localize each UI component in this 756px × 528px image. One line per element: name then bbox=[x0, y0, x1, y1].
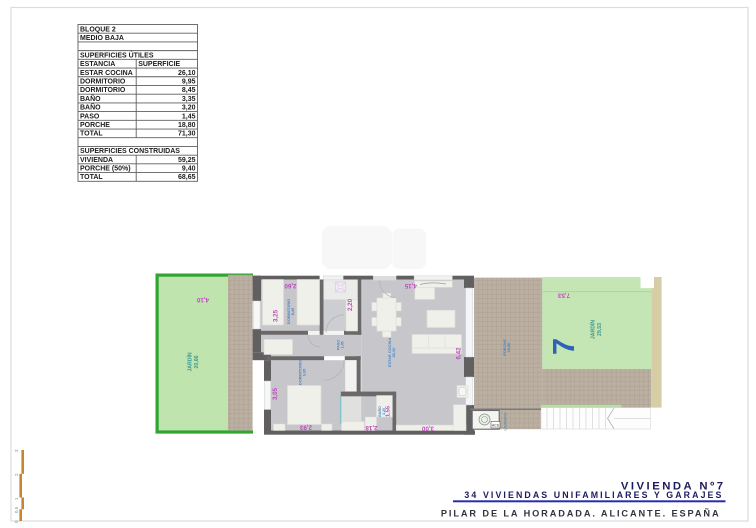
svg-text:34 VIVIENDAS UNIFAMILIARES Y G: 34 VIVIENDAS UNIFAMILIARES Y GARAJES bbox=[464, 490, 723, 500]
svg-text:3,00: 3,00 bbox=[421, 424, 434, 431]
svg-text:PASO: PASO bbox=[80, 113, 100, 120]
svg-text:JARDÍN: JARDÍN bbox=[589, 320, 597, 340]
svg-text:DORMITORIO: DORMITORIO bbox=[80, 87, 126, 94]
svg-text:3,20: 3,20 bbox=[182, 105, 196, 112]
svg-text:SUPERFICIES CONSTRUIDAS: SUPERFICIES CONSTRUIDAS bbox=[80, 148, 180, 155]
svg-text:26,10: 26,10 bbox=[391, 348, 396, 358]
svg-text:PILAR DE LA HORADADA. ALICANTE: PILAR DE LA HORADADA. ALICANTE. ESPAÑA bbox=[441, 508, 721, 518]
svg-text:9,95: 9,95 bbox=[302, 368, 307, 376]
svg-text:18,80: 18,80 bbox=[178, 122, 196, 129]
svg-text:18,80: 18,80 bbox=[506, 343, 511, 353]
svg-text:DORMITORIO: DORMITORIO bbox=[80, 79, 126, 86]
svg-text:2,60: 2,60 bbox=[284, 282, 297, 289]
svg-text:ACS: ACS bbox=[492, 424, 500, 428]
svg-text:3,05: 3,05 bbox=[272, 387, 279, 400]
svg-text:ESTANCIA: ESTANCIA bbox=[80, 61, 115, 68]
svg-text:PORCHE (50%): PORCHE (50%) bbox=[80, 166, 131, 173]
svg-text:SUPERFICIES ÚTILES: SUPERFICIES ÚTILES bbox=[80, 50, 154, 59]
svg-text:7: 7 bbox=[546, 338, 581, 355]
svg-text:9,95: 9,95 bbox=[182, 79, 196, 86]
svg-text:1,45: 1,45 bbox=[340, 341, 344, 348]
svg-text:PORCHE: PORCHE bbox=[80, 122, 110, 129]
svg-text:29,53: 29,53 bbox=[597, 323, 603, 336]
svg-text:JARDÍN: JARDÍN bbox=[186, 352, 194, 372]
svg-text:0.5: 0.5 bbox=[14, 506, 19, 513]
svg-text:3,35: 3,35 bbox=[182, 96, 196, 103]
svg-text:SUPERFICIE: SUPERFICIE bbox=[138, 61, 180, 68]
svg-text:2,20: 2,20 bbox=[347, 298, 354, 311]
svg-text:BLOQUE 2: BLOQUE 2 bbox=[80, 26, 116, 33]
svg-text:20,66: 20,66 bbox=[194, 355, 200, 368]
svg-text:TOTAL: TOTAL bbox=[80, 131, 103, 138]
svg-text:BAÑO: BAÑO bbox=[80, 94, 101, 103]
svg-text:68,65: 68,65 bbox=[178, 174, 196, 181]
svg-text:59,25: 59,25 bbox=[178, 157, 196, 164]
svg-text:MEDIO BAJA: MEDIO BAJA bbox=[80, 35, 124, 42]
svg-text:1,55: 1,55 bbox=[386, 406, 392, 417]
svg-text:71,30: 71,30 bbox=[178, 131, 196, 138]
svg-text:4,15: 4,15 bbox=[404, 282, 417, 289]
svg-text:BAÑO: BAÑO bbox=[80, 103, 101, 112]
svg-text:LAVADERO: LAVADERO bbox=[504, 412, 508, 430]
svg-text:3,25: 3,25 bbox=[273, 309, 280, 322]
svg-text:TOTAL: TOTAL bbox=[80, 174, 103, 181]
svg-text:26,10: 26,10 bbox=[178, 70, 196, 77]
svg-text:2,18: 2,18 bbox=[365, 424, 378, 431]
svg-text:8,45: 8,45 bbox=[182, 87, 196, 94]
svg-text:4,10: 4,10 bbox=[196, 296, 209, 303]
svg-text:ESTAR COCINA: ESTAR COCINA bbox=[80, 70, 133, 77]
svg-text:9,40: 9,40 bbox=[182, 166, 196, 173]
svg-text:VIVIENDA: VIVIENDA bbox=[80, 157, 113, 164]
svg-text:2,93: 2,93 bbox=[299, 424, 312, 431]
svg-text:7,53: 7,53 bbox=[557, 292, 570, 299]
svg-text:8,45: 8,45 bbox=[290, 307, 295, 315]
svg-text:6,42: 6,42 bbox=[456, 347, 463, 360]
svg-text:1,45: 1,45 bbox=[182, 113, 196, 120]
